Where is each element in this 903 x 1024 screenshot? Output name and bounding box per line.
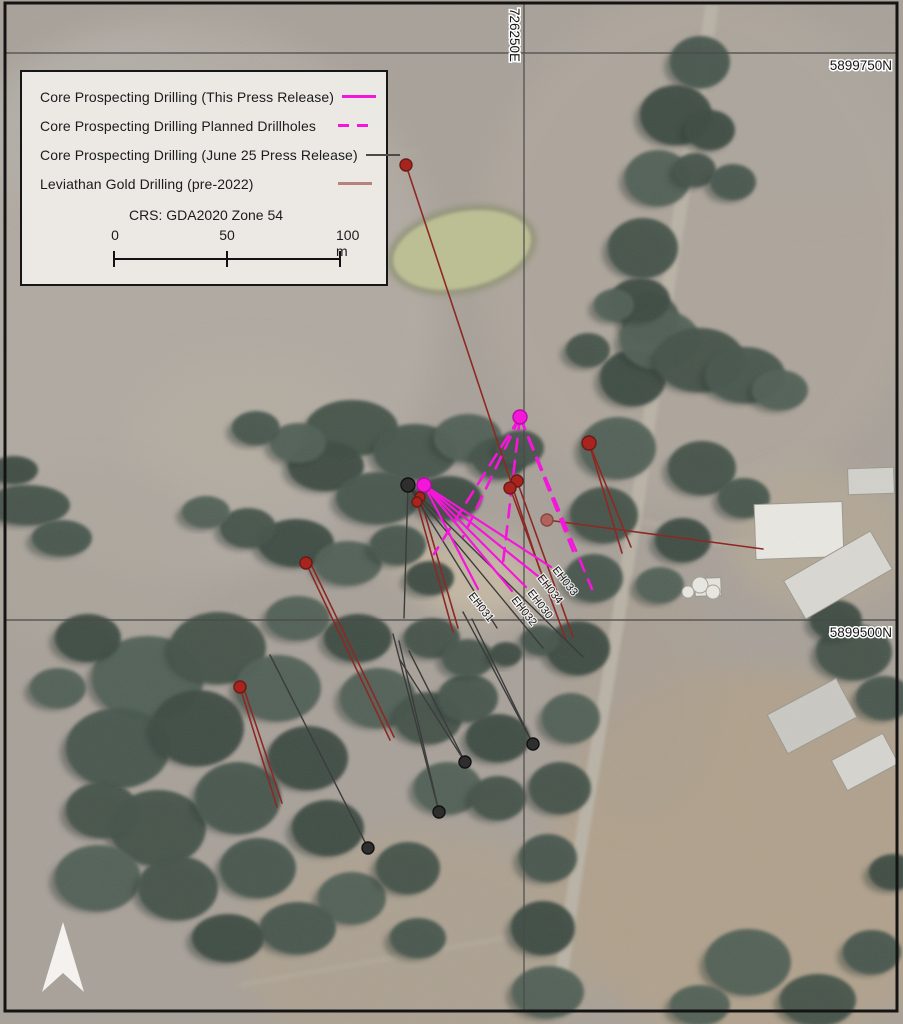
magenta-dashed-line-swatch [338,124,372,127]
scale-bar-tick [226,251,228,267]
collar-dot-magenta [513,410,527,424]
collar-dot-black [527,738,539,750]
collar-dot-black [459,756,471,768]
northing-label: 5899500N [830,625,892,640]
black-line-swatch [366,154,400,156]
collar-dot-black [362,842,374,854]
magenta-solid-line-swatch [342,95,376,98]
legend-item: Leviathan Gold Drilling (pre-2022) [40,169,372,198]
scale-bar: 0 50 100 m [40,225,372,277]
easting-label: 726250E [507,8,522,62]
map-legend: Core Prospecting Drilling (This Press Re… [20,70,388,286]
collar-dot-magenta [417,478,431,492]
scale-tick-label: 0 [111,227,119,243]
collar-dot-red [582,436,596,450]
legend-item: Core Prospecting Drilling (This Press Re… [40,82,372,111]
collar-dot-red [300,557,312,569]
scale-tick-label: 50 [219,227,235,243]
legend-item: Core Prospecting Drilling Planned Drillh… [40,111,372,140]
northing-label: 5899750N [830,58,892,73]
collar-dot-red [234,681,246,693]
crs-label: CRS: GDA2020 Zone 54 [40,207,372,223]
legend-item-label: Core Prospecting Drilling (June 25 Press… [40,147,358,163]
legend-item-label: Core Prospecting Drilling (This Press Re… [40,89,334,105]
collar-dot-red [400,159,412,171]
drilling-map-figure: EH031EH032EH030EH034EH033726250E5899750N… [0,0,903,1024]
legend-item-label: Leviathan Gold Drilling (pre-2022) [40,176,254,192]
legend-item-label: Core Prospecting Drilling Planned Drillh… [40,118,316,134]
legend-item: Core Prospecting Drilling (June 25 Press… [40,140,372,169]
scale-bar-tick [113,251,115,267]
collar-dot-red [504,482,516,494]
collar-dot-black [433,806,445,818]
collar-dot-red [412,497,422,507]
red-line-swatch [338,182,372,185]
collar-dot-red-light [541,514,553,526]
scale-bar-tick [339,251,341,267]
collar-dot-black [401,478,415,492]
